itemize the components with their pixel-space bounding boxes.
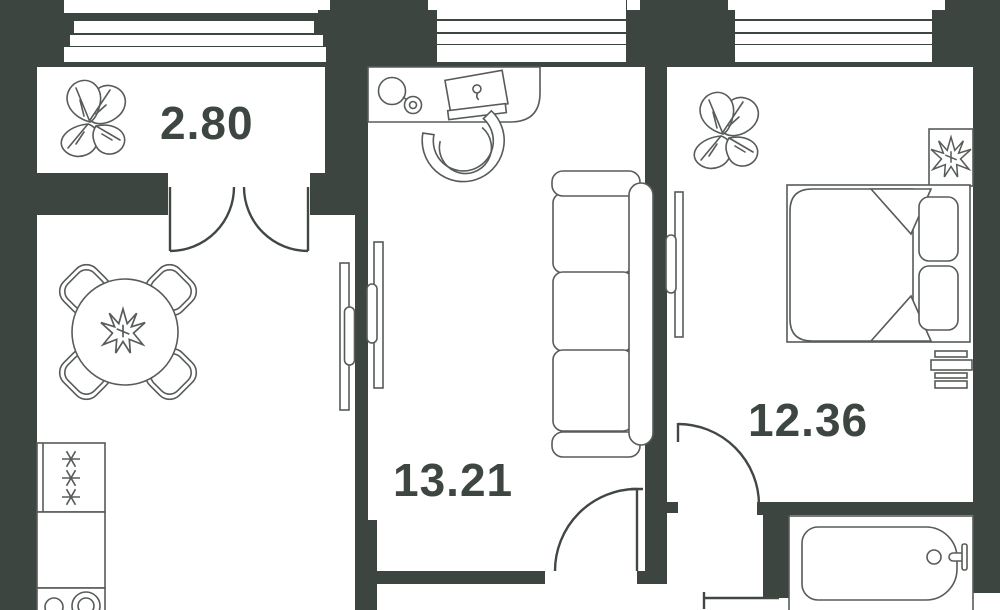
furniture-layer	[0, 0, 1000, 610]
sliding-door-panel	[340, 263, 355, 410]
bedroom-area-label: 12.36	[748, 393, 868, 447]
sliding-door-panel	[367, 242, 383, 388]
bedroom-door	[678, 423, 759, 505]
dresser	[931, 351, 972, 388]
bedroom-monstera-plant-icon	[694, 92, 758, 168]
living-room-door	[555, 488, 643, 571]
bathtub	[789, 516, 973, 610]
sliding-door-panel	[666, 192, 683, 337]
floor-plan: 2.80 13.21 12.36	[0, 0, 1000, 610]
balcony-area-label: 2.80	[160, 96, 254, 150]
hall-opening-line	[704, 592, 779, 609]
balcony-french-door	[170, 187, 308, 251]
living-area-label: 13.21	[393, 453, 513, 507]
balcony-monstera-plant-icon	[61, 80, 125, 156]
kitchen-stove	[37, 588, 105, 610]
double-bed	[787, 185, 970, 342]
sofa	[552, 171, 653, 457]
kitchen-fridge	[37, 443, 105, 512]
kitchen-counter	[37, 512, 105, 588]
